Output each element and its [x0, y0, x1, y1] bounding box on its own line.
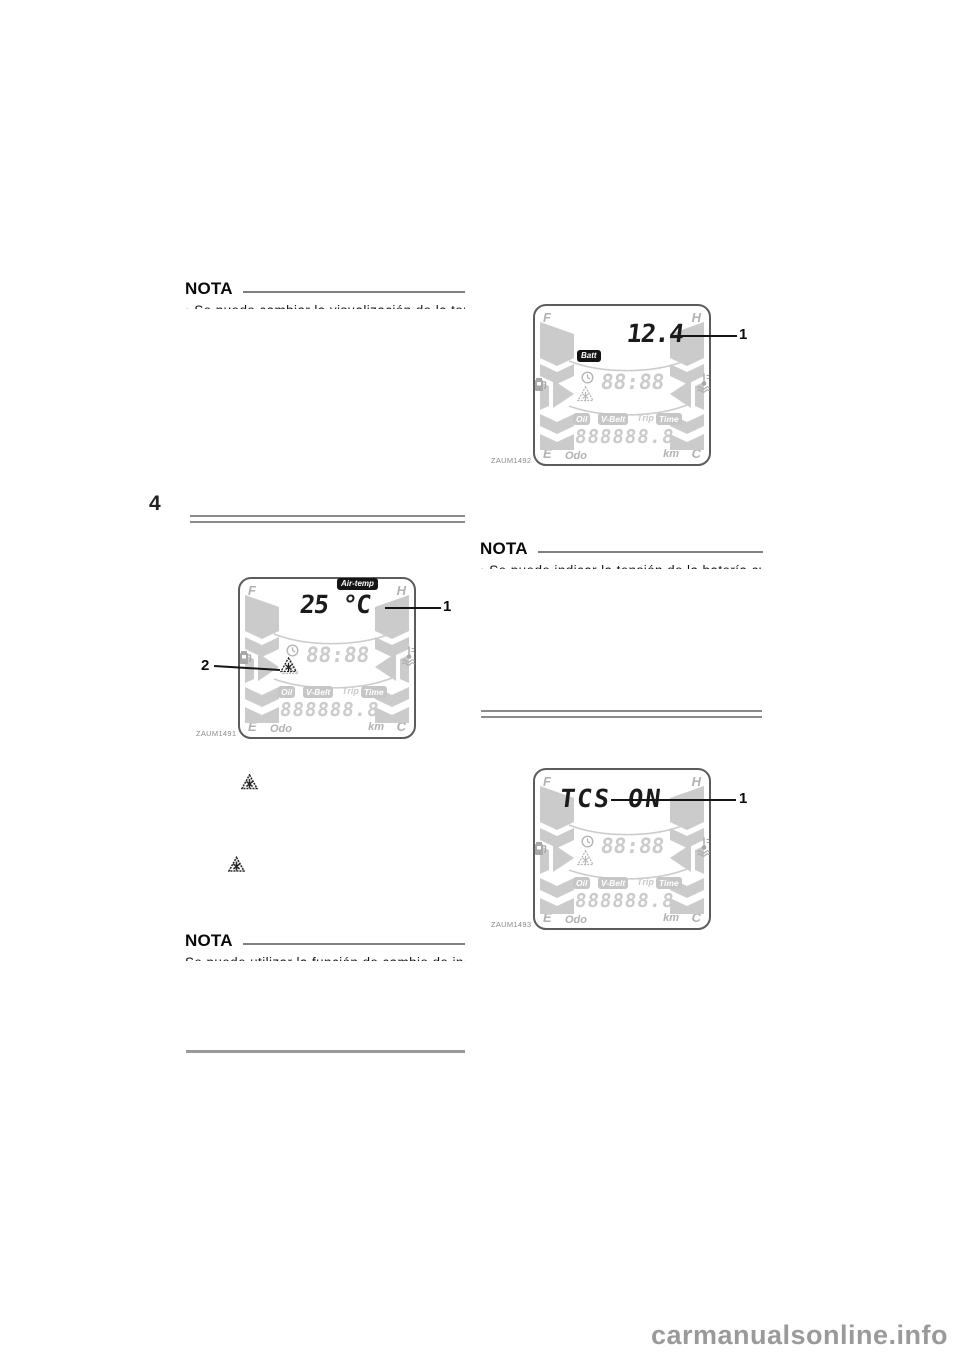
note-2-rule — [538, 551, 763, 553]
time-badge: Time — [361, 686, 387, 698]
odo-label: Odo — [565, 450, 587, 462]
fuel-pump-icon — [533, 840, 548, 857]
note-block-3: NOTA Se puede utilizar la función de cam… — [185, 931, 465, 961]
note-3-title: NOTA — [185, 931, 233, 951]
km-label: km — [663, 448, 679, 460]
callout-1-label: 1 — [443, 598, 451, 615]
frost-warning-inline-icon — [241, 774, 258, 790]
callout-1-line — [611, 799, 736, 801]
trip-label: Trip — [637, 413, 654, 423]
clock-segments: 88:88 — [305, 643, 371, 667]
battery-voltage-value: 12.4 — [625, 319, 685, 348]
clock-segments: 88:88 — [600, 834, 666, 858]
figure-tcs-on: F H E C — [533, 768, 711, 930]
watermark: carmanualsonline.info — [651, 1320, 948, 1351]
figure-battery-voltage: F H E C — [533, 304, 711, 466]
double-rule-left — [190, 515, 465, 523]
coolant-temp-icon — [696, 836, 712, 857]
note-3-clipped-text: Se puede utilizar la función de cambio d… — [185, 955, 465, 961]
oil-badge: Oil — [573, 413, 590, 425]
frost-warning-icon — [577, 386, 594, 402]
thin-rule-left — [186, 1050, 465, 1053]
odo-label: Odo — [270, 723, 292, 735]
oil-badge: Oil — [573, 877, 590, 889]
section-number: 4 — [149, 492, 161, 516]
figure-code: ZAUM1492 — [491, 456, 531, 465]
note-block-1: NOTA • Se puede cambiar la visualización… — [185, 279, 465, 309]
callout-2-label: 2 — [201, 657, 209, 674]
v-belt-badge: V-Belt — [303, 686, 333, 698]
fuel-pump-icon — [238, 649, 253, 666]
note-3-rule — [243, 943, 465, 945]
callout-1-label: 1 — [739, 326, 747, 343]
clock-icon — [581, 371, 594, 384]
odometer-segments: 888888.8 — [279, 699, 381, 721]
frost-warning-icon — [577, 850, 594, 866]
double-rule-right — [481, 710, 762, 718]
note-1-rule — [243, 291, 465, 293]
v-belt-badge: V-Belt — [598, 877, 628, 889]
note-2-title: NOTA — [480, 539, 528, 559]
figure-code: ZAUM1491 — [196, 729, 236, 738]
clock-icon — [581, 835, 594, 848]
note-block-2: NOTA • Se puede indicar la tensión de la… — [480, 539, 763, 569]
note-2-heading-row: NOTA — [480, 539, 763, 559]
batt-badge: Batt — [577, 350, 601, 362]
odo-label: Odo — [565, 914, 587, 926]
figure-air-temperature: F H E C — [238, 577, 416, 739]
note-1-heading-row: NOTA — [185, 279, 465, 299]
frost-warning-inline-icon — [228, 856, 245, 873]
km-label: km — [368, 721, 384, 733]
frost-warning-icon-active — [280, 657, 297, 673]
trip-label: Trip — [342, 686, 359, 696]
odometer-segments: 888888.8 — [574, 426, 676, 448]
fuel-pump-icon — [533, 376, 548, 393]
manual-page: NOTA • Se puede cambiar la visualización… — [0, 0, 960, 1358]
km-label: km — [663, 912, 679, 924]
oil-badge: Oil — [278, 686, 295, 698]
v-belt-badge: V-Belt — [598, 413, 628, 425]
air-temperature-value: 25 °C — [298, 590, 372, 619]
coolant-temp-icon — [696, 372, 712, 393]
note-1-clipped-text: • Se puede cambiar la visualización de l… — [185, 303, 465, 309]
coolant-temp-icon — [401, 645, 417, 666]
callout-1-line — [681, 335, 737, 337]
clock-segments: 88:88 — [600, 370, 666, 394]
clock-icon — [286, 644, 299, 657]
callout-1-line — [385, 607, 441, 609]
time-badge: Time — [656, 413, 682, 425]
note-3-heading-row: NOTA — [185, 931, 465, 951]
odometer-segments: 888888.8 — [574, 890, 676, 912]
trip-label: Trip — [637, 877, 654, 887]
note-2-clipped-text: • Se puede indicar la tensión de la bate… — [480, 563, 763, 569]
callout-1-label: 1 — [739, 790, 747, 807]
figure-code: ZAUM1493 — [491, 920, 531, 929]
lcd-display-battery: F H E C — [533, 304, 711, 466]
time-badge: Time — [656, 877, 682, 889]
note-1-title: NOTA — [185, 279, 233, 299]
air-temp-badge: Air-temp — [337, 578, 378, 590]
